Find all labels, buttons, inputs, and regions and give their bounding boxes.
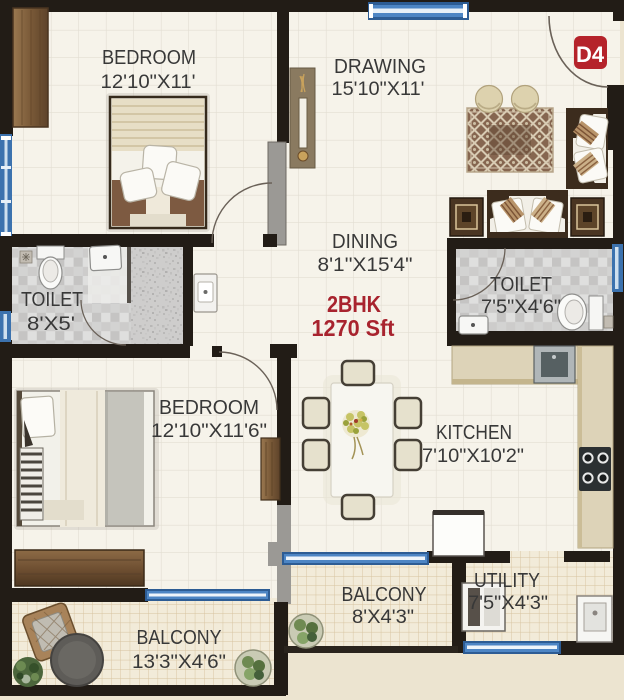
svg-text:8'X5': 8'X5' xyxy=(27,314,75,335)
svg-text:BEDROOM: BEDROOM xyxy=(102,47,196,69)
svg-text:2BHK: 2BHK xyxy=(327,291,381,317)
svg-text:UTILITY: UTILITY xyxy=(474,570,540,592)
svg-text:BEDROOM: BEDROOM xyxy=(159,397,259,419)
svg-text:8'X4'3": 8'X4'3" xyxy=(352,607,414,628)
svg-text:7'5"X4'3": 7'5"X4'3" xyxy=(468,593,548,614)
svg-text:7'10"X10'2": 7'10"X10'2" xyxy=(422,446,524,467)
svg-text:D4: D4 xyxy=(576,42,605,67)
svg-text:BALCONY: BALCONY xyxy=(137,627,222,649)
svg-text:8'1''X15'4": 8'1''X15'4" xyxy=(318,255,413,276)
svg-text:12'10"X11'6": 12'10"X11'6" xyxy=(151,421,267,442)
svg-text:13'3"X4'6": 13'3"X4'6" xyxy=(132,652,226,673)
svg-text:7'5"X4'6": 7'5"X4'6" xyxy=(481,297,561,318)
svg-text:1270 Sft: 1270 Sft xyxy=(312,315,395,341)
svg-text:DINING: DINING xyxy=(332,231,398,253)
svg-text:TOILET: TOILET xyxy=(21,289,83,311)
svg-text:12'10"X11': 12'10"X11' xyxy=(101,72,196,93)
svg-text:TOILET: TOILET xyxy=(490,274,552,296)
svg-text:DRAWING: DRAWING xyxy=(334,56,426,78)
svg-text:15'10"X11': 15'10"X11' xyxy=(332,79,425,100)
svg-text:KITCHEN: KITCHEN xyxy=(436,422,512,444)
svg-text:BALCONY: BALCONY xyxy=(342,584,427,606)
